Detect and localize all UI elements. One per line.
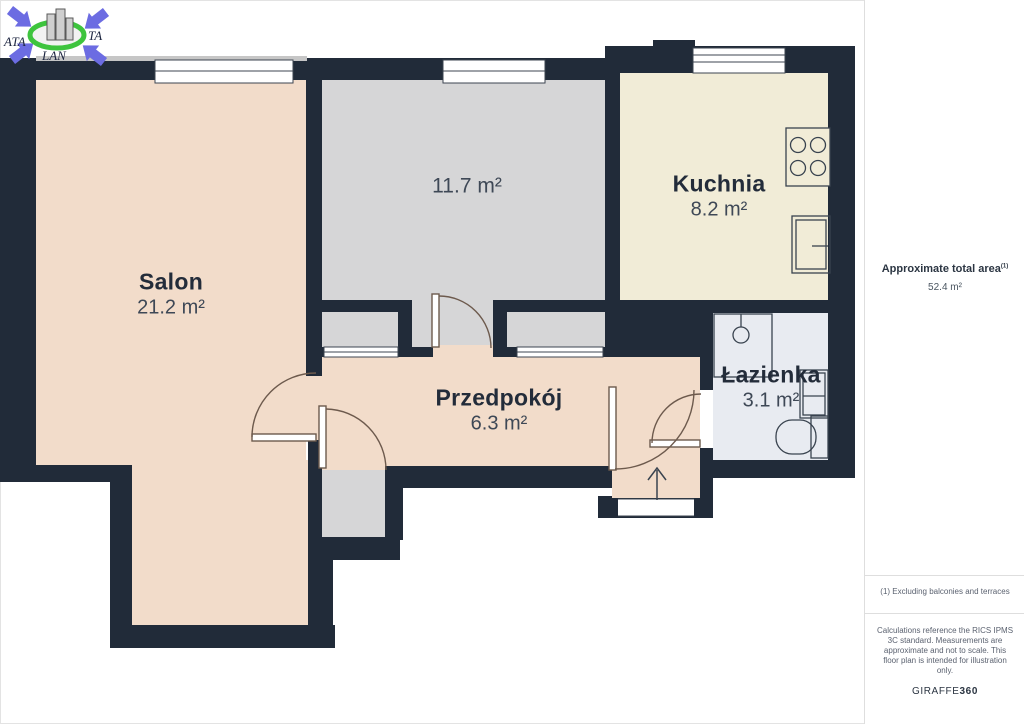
logo-text-bottom: LAN: [41, 48, 67, 63]
logo-text-right: TA: [88, 28, 102, 43]
hallway-entry-floor: [612, 466, 700, 498]
room-area: 6.3 m²: [436, 413, 563, 436]
total-area-label: Approximate total area(1): [865, 263, 1024, 275]
grayroom-door-gap: [433, 345, 493, 359]
room-name: Przedpokój: [436, 385, 563, 412]
total-area-footnote-marker: (1): [1001, 263, 1008, 269]
room-area: 8.2 m²: [673, 199, 766, 222]
sidebar: Approximate total area(1) 52.4 m² (1) Ex…: [864, 0, 1024, 724]
room-label-przedpokoj: Przedpokój 6.3 m²: [436, 385, 563, 436]
total-area-value: 52.4 m²: [865, 282, 1024, 293]
floorplan-page: Salon 21.2 m² 11.7 m² Kuchnia 8.2 m² Prz…: [0, 0, 1024, 724]
interior-window-left: [324, 347, 398, 357]
interior-window-right: [517, 347, 603, 357]
disclaimer-text: Calculations reference the RICS IPMS 3C …: [876, 626, 1014, 676]
brand-suffix: 360: [960, 686, 979, 697]
room-name: Salon: [137, 269, 205, 296]
grayroom-window: [443, 60, 545, 83]
logo-text-left: ATA: [3, 34, 26, 49]
room-area: 21.2 m²: [137, 297, 205, 320]
salon-window: [155, 60, 293, 83]
room-label-salon: Salon 21.2 m²: [137, 269, 205, 320]
room-label-lazienka: Łazienka 3.1 m²: [721, 362, 821, 413]
room-area: 11.7 m²: [432, 175, 502, 199]
bathroom-doorway-gap: [700, 390, 713, 448]
room-name: Łazienka: [721, 362, 821, 389]
room-name: Kuchnia: [673, 171, 766, 198]
room-label-grayroom: 11.7 m²: [432, 174, 502, 199]
divider: [865, 575, 1024, 576]
footnote: (1) Excluding balconies and terraces: [865, 587, 1024, 596]
room-area: 3.1 m²: [721, 390, 821, 413]
brand-logo: GIRAFFE360: [865, 686, 1024, 697]
kitchen-window: [693, 48, 785, 73]
total-area-block: Approximate total area(1) 52.4 m²: [865, 263, 1024, 293]
entrance-gap: [618, 499, 694, 516]
room-label-kuchnia: Kuchnia 8.2 m²: [673, 171, 766, 222]
agency-logo: ATA TA LAN: [2, 2, 114, 66]
closet-floor: [322, 470, 385, 537]
total-area-label-text: Approximate total area: [882, 263, 1001, 275]
stove-symbol: [786, 128, 830, 186]
divider: [865, 613, 1024, 614]
chimney-block: [653, 40, 695, 73]
brand-name: GIRAFFE: [912, 686, 960, 697]
logo-buildings-icon: [47, 9, 73, 40]
salon-floor-lower: [132, 460, 308, 625]
